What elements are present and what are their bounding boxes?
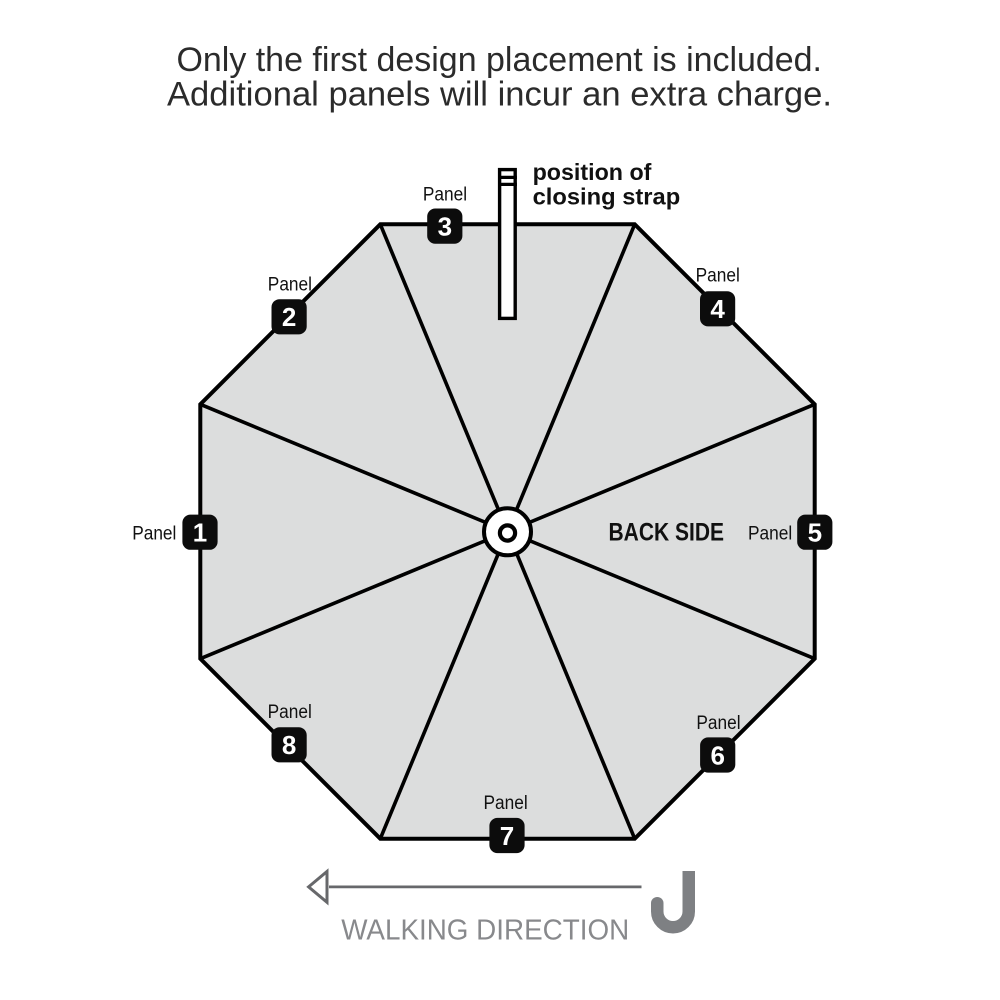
svg-text:Panel: Panel <box>268 702 312 723</box>
svg-text:7: 7 <box>500 821 514 851</box>
svg-text:Panel: Panel <box>484 793 528 814</box>
svg-text:Panel: Panel <box>696 266 740 287</box>
svg-text:Panel: Panel <box>748 524 792 545</box>
svg-text:closing strap: closing strap <box>533 184 681 210</box>
svg-text:BACK SIDE: BACK SIDE <box>609 519 725 547</box>
svg-text:Panel: Panel <box>132 524 176 545</box>
svg-text:Only the first design placemen: Only the first design placement is inclu… <box>177 41 823 79</box>
svg-text:1: 1 <box>193 518 207 548</box>
svg-text:8: 8 <box>282 730 296 760</box>
svg-text:4: 4 <box>710 294 725 324</box>
svg-text:WALKING DIRECTION: WALKING DIRECTION <box>341 915 629 947</box>
svg-text:3: 3 <box>438 212 452 242</box>
svg-text:position of: position of <box>533 159 652 185</box>
svg-text:5: 5 <box>808 518 822 548</box>
svg-text:Panel: Panel <box>268 274 312 295</box>
svg-text:Additional panels will incur a: Additional panels will incur an extra ch… <box>167 76 832 114</box>
svg-text:6: 6 <box>710 740 724 770</box>
svg-text:Panel: Panel <box>696 713 740 734</box>
svg-text:Panel: Panel <box>423 185 467 206</box>
svg-text:2: 2 <box>282 302 296 332</box>
